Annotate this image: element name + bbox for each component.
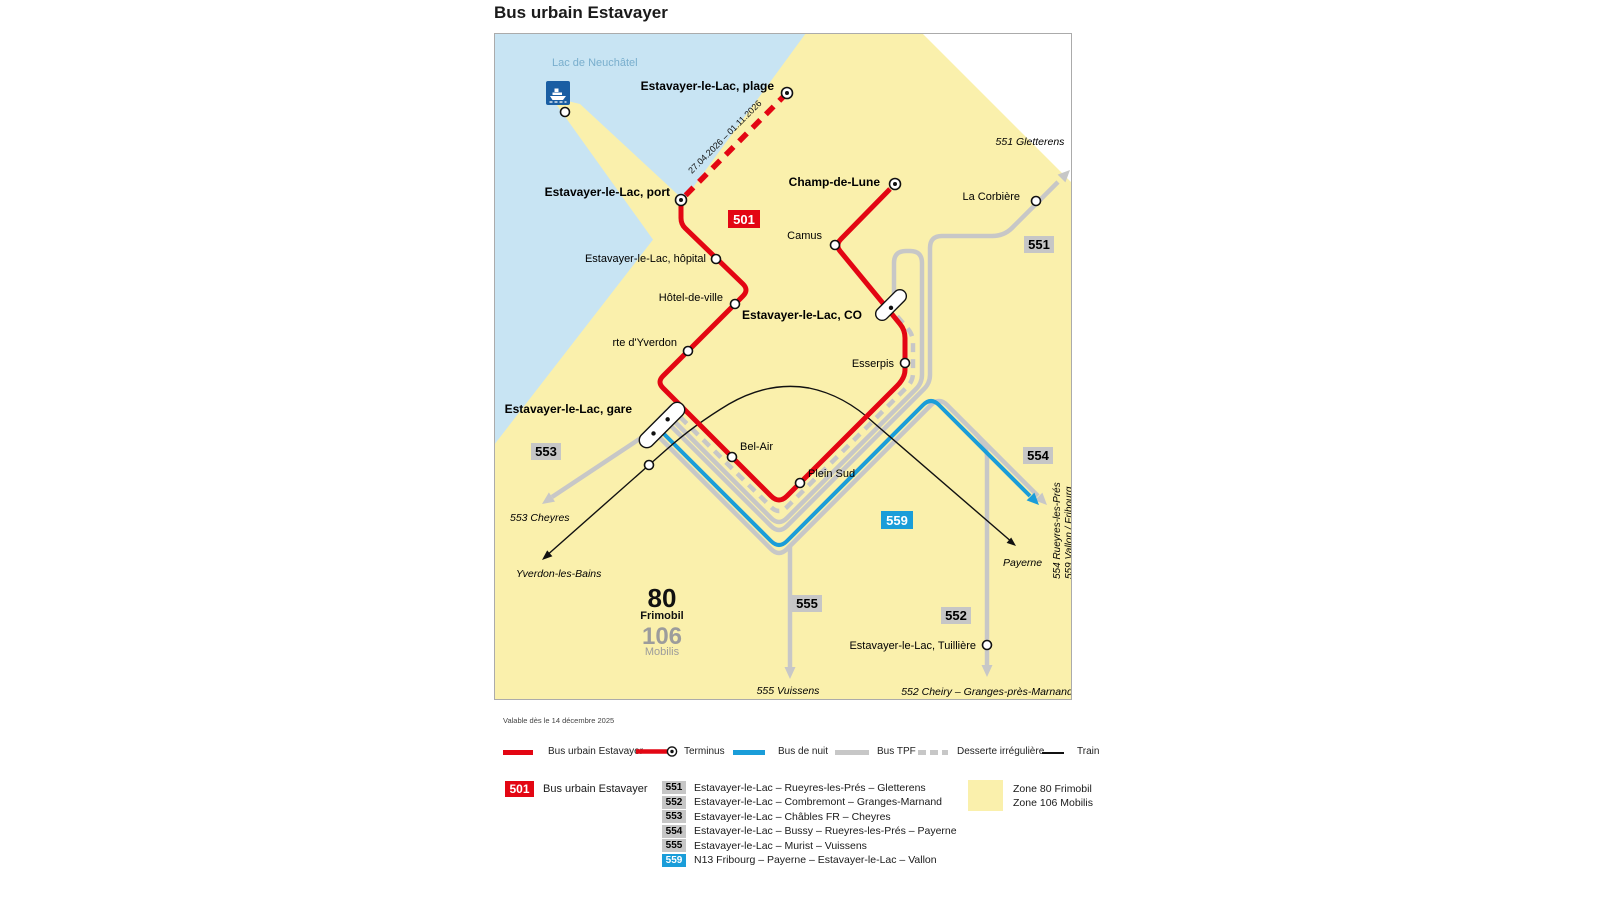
legend-label-urban: Bus urbain Estavayer [548,746,643,757]
route-badge-552: 552 [662,796,686,809]
dest-vuissens: 555 Vuissens [757,685,821,697]
transit-map: 80 Frimobil 106 Mobilis [494,33,1072,700]
label-port: Estavayer-le-Lac, port [545,185,670,199]
route-name-555: Estavayer-le-Lac – Murist – Vuissens [694,840,867,852]
route-name-553: Estavayer-le-Lac – Châbles FR – Cheyres [694,811,891,823]
route-row-554: 554 Estavayer-le-Lac – Bussy – Rueyres-l… [662,825,1082,838]
zone-106-name: Mobilis [645,646,680,658]
label-bel-air: Bel-Air [740,441,773,453]
dest-payerne: Payerne [1003,557,1042,569]
stop-gare-forecourt [645,461,654,470]
route-name-552: Estavayer-le-Lac – Combremont – Granges-… [694,796,942,808]
stop-hopital [712,255,721,264]
legend-label-night-bus: Bus de nuit [778,746,828,757]
legend-swatch-tpf-bus [835,750,869,755]
label-rte-yverdon: rte d'Yverdon [613,337,677,349]
dest-cheiry: 552 Cheiry – Granges-près-Marnand [901,686,1072,698]
label-plein-sud: Plein Sud [808,468,855,480]
badge-501: 501 [733,212,755,227]
label-champ-de-lune: Champ-de-Lune [789,175,881,189]
stop-debarcadere [561,108,570,117]
route-row-553: 553 Estavayer-le-Lac – Châbles FR – Chey… [662,810,1082,823]
badge-554: 554 [1027,448,1049,463]
validity-note: Valable dès le 14 décembre 2025 [503,716,614,725]
legend-label-train: Train [1077,746,1099,757]
page-title: Bus urbain Estavayer [494,3,668,23]
badge-551: 551 [1028,237,1050,252]
dest-yverdon: Yverdon-les-Bains [516,568,602,580]
legend-swatch-terminus [635,745,681,758]
badge-552: 552 [945,608,967,623]
stop-rte-yverdon [684,347,693,356]
route-badge-553: 553 [662,810,686,823]
route-name-551: Estavayer-le-Lac – Rueyres-les-Prés – Gl… [694,782,926,794]
route-name-559: N13 Fribourg – Payerne – Estavayer-le-La… [694,854,937,866]
ferry-icon [546,81,570,105]
legend-swatch-urban-line [503,750,533,755]
dest-gletterens: 551 Gletterens [996,136,1066,148]
stop-bel-air [728,453,737,462]
stop-la-corbiere [1032,197,1041,206]
legend-swatch-irregular [918,750,948,755]
zone-80-number: 80 [648,583,677,613]
route-badge-551: 551 [662,781,686,794]
zone-legend-106: Zone 106 Mobilis [1013,797,1093,809]
dest-vallon-vertical: 559 Vallon / Fribourg [1064,486,1072,579]
route-badge-554: 554 [662,825,686,838]
badge-559: 559 [886,513,908,528]
legend-swatch-night-bus [733,750,765,755]
lake-label: Lac de Neuchâtel [552,57,638,69]
route-name-554: Estavayer-le-Lac – Bussy – Rueyres-les-P… [694,825,957,837]
page: Bus urbain Estavayer 80 Frimobil 106 Mob… [0,0,1600,900]
badge-555: 555 [796,596,818,611]
label-hotel-de-ville: Hôtel-de-ville [659,292,723,304]
legend-label-tpf-bus: Bus TPF [877,746,916,757]
label-tuilliere: Estavayer-le-Lac, Tuillière [849,640,976,652]
label-hopital: Estavayer-le-Lac, hôpital [585,253,706,265]
stop-hotel-de-ville [731,300,740,309]
legend-label-terminus: Terminus [684,746,725,757]
legend-badge-501: 501 [505,781,534,797]
label-plage: Estavayer-le-Lac, plage [641,79,775,93]
label-co: Estavayer-le-Lac, CO [742,308,862,322]
zone-80-name: Frimobil [640,610,683,622]
stop-plein-sud [796,479,805,488]
badge-553: 553 [535,444,557,459]
stop-esserpis [901,359,910,368]
stop-camus [831,241,840,250]
zone-legend-80: Zone 80 Frimobil [1013,783,1092,795]
zone-legend-swatch [968,780,1003,811]
label-esserpis: Esserpis [852,358,895,370]
label-gare: Estavayer-le-Lac, gare [505,402,633,416]
legend-swatch-train [1042,752,1064,754]
label-la-corbiere: La Corbière [963,191,1020,203]
stop-tuilliere [983,641,992,650]
legend-label-irregular: Desserte irrégulière [957,746,1044,757]
label-camus: Camus [787,230,822,242]
dest-cheyres: 553 Cheyres [510,512,570,524]
legend-name-501: Bus urbain Estavayer [543,783,648,795]
route-row-559: 559 N13 Fribourg – Payerne – Estavayer-l… [662,854,1082,867]
route-badge-559: 559 [662,854,686,867]
dest-rueyres-vertical: 554 Rueyres-les-Prés [1052,482,1063,579]
route-row-555: 555 Estavayer-le-Lac – Murist – Vuissens [662,839,1082,852]
route-badge-555: 555 [662,839,686,852]
